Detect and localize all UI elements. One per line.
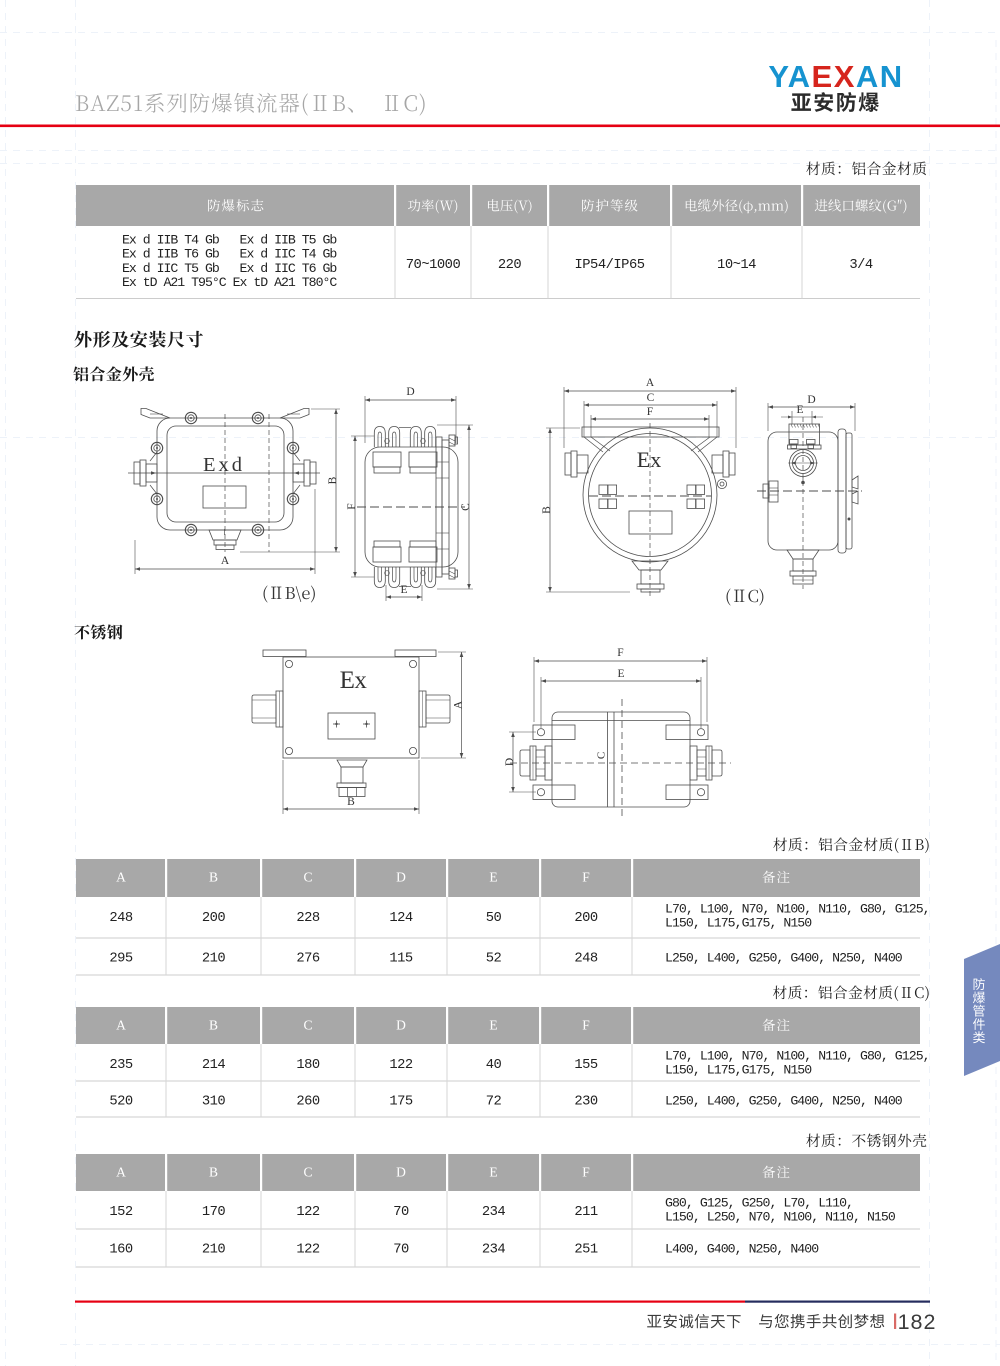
svg-text:248: 248: [109, 911, 133, 926]
svg-text:L250, L400, G250, G400, N250,: L250, L400, G250, G400, N250, N400: [665, 1094, 903, 1109]
svg-text:180: 180: [296, 1058, 320, 1073]
svg-text:A: A: [453, 700, 465, 709]
svg-text:214: 214: [202, 1058, 226, 1073]
svg-text:295: 295: [109, 952, 133, 967]
svg-text:122: 122: [389, 1058, 413, 1073]
svg-text:Ex d IIB T6 Gb Ex d IIC T4 G: Ex d IIB T6 Gb Ex d IIC T4 Gb: [122, 247, 337, 262]
svg-text:B: B: [347, 796, 355, 808]
svg-text:235: 235: [109, 1058, 133, 1073]
svg-text:L150, L250, N70, N100, N110, N: L150, L250, N70, N100, N110, N150: [665, 1210, 896, 1225]
svg-text:234: 234: [482, 1243, 506, 1258]
svg-text:B: B: [327, 476, 339, 484]
svg-text:234: 234: [482, 1205, 506, 1220]
svg-text:D: D: [396, 1165, 406, 1180]
svg-text:50: 50: [486, 911, 502, 926]
svg-text:F: F: [582, 870, 590, 885]
svg-text:E: E: [400, 584, 407, 596]
svg-text:210: 210: [202, 1243, 226, 1258]
svg-text:C: C: [303, 870, 312, 885]
svg-text:228: 228: [296, 911, 320, 926]
svg-text:310: 310: [202, 1095, 226, 1110]
svg-text:A: A: [116, 870, 126, 885]
svg-text:C: C: [460, 503, 472, 511]
svg-text:E: E: [617, 668, 624, 680]
svg-text:L150, L175,G175, N150: L150, L175,G175, N150: [665, 1063, 812, 1078]
svg-text:A: A: [116, 1018, 126, 1033]
svg-text:L70, L100, N70, N100, N110, G8: L70, L100, N70, N100, N110, G80, G125,: [665, 902, 930, 917]
svg-text:115: 115: [389, 952, 413, 967]
svg-text:C: C: [596, 752, 608, 759]
svg-text:B: B: [541, 506, 553, 514]
svg-text:L150, L175,G175, N150: L150, L175,G175, N150: [665, 916, 812, 931]
svg-text:260: 260: [296, 1095, 320, 1110]
svg-text:F: F: [346, 503, 358, 509]
svg-text:D: D: [504, 758, 516, 766]
svg-text:Ex d IIB T4 Gb Ex d IIB T5 G: Ex d IIB T4 Gb Ex d IIB T5 Gb: [122, 233, 337, 248]
svg-text:F: F: [582, 1018, 590, 1033]
svg-text:E: E: [489, 1165, 497, 1180]
svg-text:C: C: [303, 1018, 312, 1033]
svg-text:248: 248: [574, 952, 598, 967]
svg-text:D: D: [396, 870, 406, 885]
svg-text:B: B: [209, 870, 218, 885]
svg-text:E: E: [489, 870, 497, 885]
svg-text:A: A: [116, 1165, 126, 1180]
svg-text:L400, G400, N250, N400: L400, G400, N250, N400: [665, 1242, 819, 1257]
svg-text:70: 70: [393, 1243, 409, 1258]
svg-text:YAEXAN: YAEXAN: [768, 59, 903, 94]
svg-text:A: A: [221, 555, 230, 567]
svg-text:D: D: [396, 1018, 406, 1033]
svg-text:124: 124: [389, 911, 413, 926]
svg-text:Ex: Ex: [637, 447, 661, 472]
svg-text:220: 220: [498, 258, 522, 273]
svg-text:230: 230: [574, 1095, 598, 1110]
svg-text:Ex tD A21 T95°C Ex tD A21 T80°: Ex tD A21 T95°C Ex tD A21 T80°C: [122, 275, 337, 290]
svg-text:40: 40: [486, 1058, 502, 1073]
svg-text:L250, L400, G250, G400, N250,: L250, L400, G250, G400, N250, N400: [665, 951, 903, 966]
svg-text:251: 251: [574, 1243, 598, 1258]
svg-text:175: 175: [389, 1095, 413, 1110]
svg-text:L70, L100, N70, N100, N110, G8: L70, L100, N70, N100, N110, G80, G125,: [665, 1049, 930, 1064]
svg-text:3/4: 3/4: [849, 257, 873, 273]
svg-text:211: 211: [574, 1205, 598, 1220]
svg-text:Ex: Ex: [340, 667, 368, 694]
svg-text:200: 200: [574, 911, 598, 926]
svg-text:C: C: [647, 392, 655, 404]
svg-text:182: 182: [898, 1310, 937, 1334]
svg-text:A: A: [646, 377, 655, 389]
svg-text:B: B: [209, 1018, 218, 1033]
svg-text:F: F: [617, 647, 623, 659]
svg-text:52: 52: [486, 952, 502, 967]
svg-text:E: E: [489, 1018, 497, 1033]
svg-text:B: B: [209, 1165, 218, 1180]
svg-text:70: 70: [393, 1205, 409, 1220]
svg-text:152: 152: [109, 1205, 133, 1220]
svg-text:122: 122: [296, 1243, 320, 1258]
svg-text:155: 155: [574, 1058, 598, 1073]
svg-text:160: 160: [109, 1243, 133, 1258]
svg-text:520: 520: [109, 1095, 133, 1110]
svg-text:210: 210: [202, 952, 226, 967]
svg-text:G80, G125, G250, L70, L110,: G80, G125, G250, L70, L110,: [665, 1196, 853, 1211]
svg-text:70~1000: 70~1000: [406, 258, 461, 273]
svg-text:F: F: [647, 406, 653, 418]
svg-text:F: F: [582, 1165, 590, 1180]
svg-text:C: C: [303, 1165, 312, 1180]
svg-text:Ex d IIC T5 Gb Ex d IIC T6 G: Ex d IIC T5 Gb Ex d IIC T6 Gb: [122, 261, 337, 276]
svg-text:D: D: [406, 386, 414, 398]
svg-text:72: 72: [486, 1095, 502, 1110]
svg-text:276: 276: [296, 952, 320, 967]
svg-text:122: 122: [296, 1205, 320, 1220]
svg-text:170: 170: [202, 1205, 226, 1220]
svg-text:IP54/IP65: IP54/IP65: [574, 257, 644, 273]
svg-text:D: D: [807, 394, 815, 406]
svg-text:E: E: [796, 404, 803, 416]
svg-text:200: 200: [202, 911, 226, 926]
svg-text:10~14: 10~14: [717, 258, 756, 273]
